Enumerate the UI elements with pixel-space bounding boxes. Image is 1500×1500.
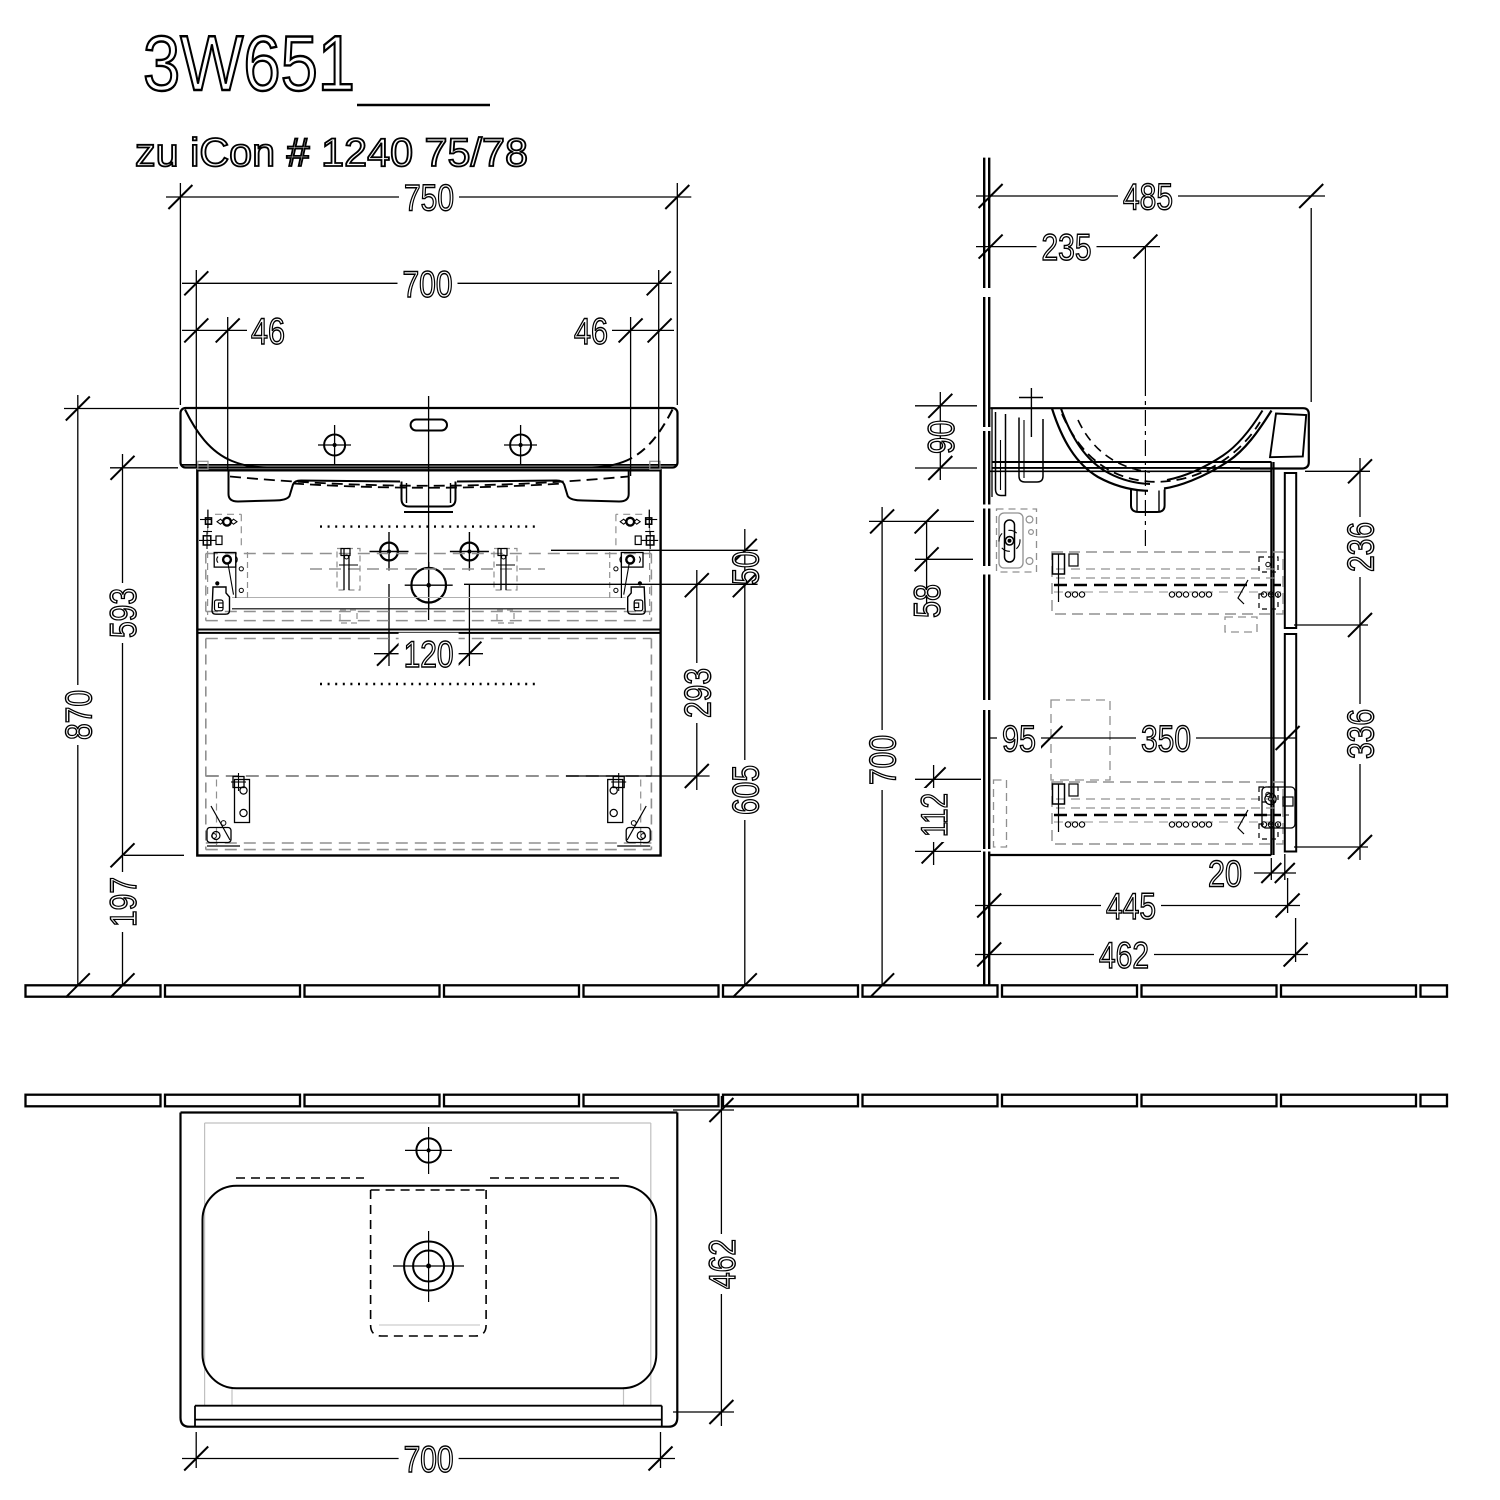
svg-text:95: 95 (1002, 719, 1036, 760)
svg-text:336: 336 (1341, 709, 1382, 759)
svg-text:90: 90 (921, 420, 962, 454)
svg-text:870: 870 (58, 690, 99, 740)
svg-text:485: 485 (1123, 177, 1173, 218)
svg-text:236: 236 (1341, 522, 1382, 572)
svg-text:112: 112 (914, 793, 955, 837)
svg-text:462: 462 (702, 1239, 743, 1289)
svg-text:197: 197 (103, 877, 144, 927)
svg-text:750: 750 (404, 178, 454, 219)
svg-text:zu iCon # 1240 75/78: zu iCon # 1240 75/78 (135, 131, 528, 175)
svg-text:120: 120 (404, 634, 454, 675)
svg-text:350: 350 (1141, 719, 1191, 760)
svg-text:46: 46 (574, 311, 608, 352)
svg-text:3W651: 3W651 (143, 19, 355, 107)
svg-text:235: 235 (1042, 227, 1092, 268)
svg-text:20: 20 (1208, 854, 1242, 895)
svg-text:605: 605 (725, 765, 766, 815)
svg-text:58: 58 (907, 584, 948, 618)
svg-text:50: 50 (725, 551, 766, 585)
svg-text:700: 700 (863, 735, 904, 785)
svg-text:445: 445 (1106, 886, 1156, 927)
svg-text:700: 700 (403, 264, 453, 305)
svg-text:700: 700 (404, 1439, 454, 1480)
svg-text:462: 462 (1099, 935, 1149, 976)
svg-text:293: 293 (677, 668, 718, 718)
svg-text:46: 46 (251, 311, 285, 352)
svg-text:593: 593 (103, 588, 144, 638)
